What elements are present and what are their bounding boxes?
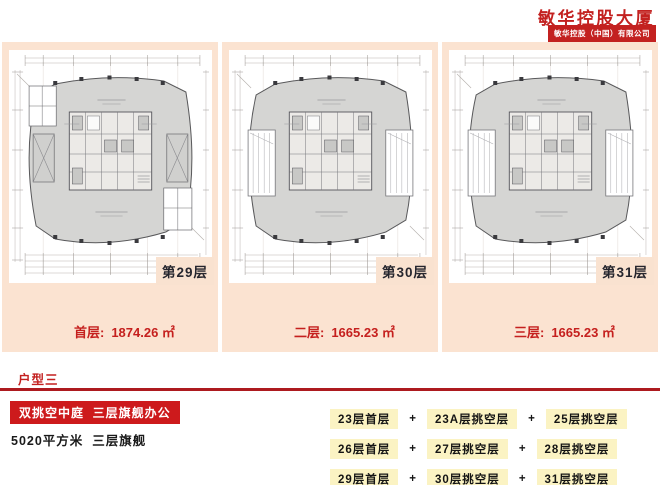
floor-31-tag: 第31层: [596, 257, 654, 285]
area-label: 首层:: [74, 325, 104, 340]
floor-29-area: 首层:1874.26 ㎡: [2, 307, 218, 356]
floor-cell: 25层挑空层: [546, 409, 627, 429]
plus-sign: +: [409, 443, 416, 455]
floor-30-area: 二层:1665.23 ㎡: [222, 307, 438, 356]
table-row: 23层首层 + 23A层挑空层 + 25层挑空层: [330, 409, 627, 429]
area-value: 1665.23 ㎡: [331, 325, 395, 340]
slide-page: 敏华控股大厦 敏华控股（中国）有限公司 第29层 首层:1874.26 ㎡ 第3…: [0, 0, 660, 485]
plus-sign: +: [519, 443, 526, 455]
plus-sign: +: [409, 473, 416, 485]
floor-cell: 31层挑空层: [537, 469, 618, 485]
floor-31-area: 三层:1665.23 ㎡: [442, 307, 658, 356]
unit-subtitle: 5020平方米 三层旗舰: [11, 430, 146, 449]
floor-cell: 27层挑空层: [427, 439, 508, 459]
area-label: 三层:: [514, 325, 544, 340]
panel-floor-30: 第30层 二层:1665.23 ㎡: [222, 42, 438, 352]
floor-cell: 29层首层: [330, 469, 398, 485]
panel-floor-29: 第29层 首层:1874.26 ㎡: [2, 42, 218, 352]
floor-30-tag: 第30层: [376, 257, 434, 285]
unit-type-title: 户型三: [18, 369, 59, 388]
area-value: 1665.23 ㎡: [551, 325, 615, 340]
floor-plan-31-drawing: [449, 50, 652, 283]
company-subtitle-bar: 敏华控股（中国）有限公司: [548, 25, 656, 42]
table-row: 29层首层 + 30层挑空层 + 31层挑空层: [330, 469, 627, 485]
floor-29-tag: 第29层: [156, 257, 214, 285]
table-row: 26层首层 + 27层挑空层 + 28层挑空层: [330, 439, 627, 459]
panel-floor-31: 第31层 三层:1665.23 ㎡: [442, 42, 658, 352]
area-label: 二层:: [294, 325, 324, 340]
floor-cell: 26层首层: [330, 439, 398, 459]
area-value: 1874.26 ㎡: [111, 325, 175, 340]
section-divider-rule: [0, 388, 660, 391]
floor-cell: 23A层挑空层: [427, 409, 517, 429]
floor-plan-29-drawing: [9, 50, 212, 283]
floor-plan-30-drawing: [229, 50, 432, 283]
floor-plan-panels: 第29层 首层:1874.26 ㎡ 第30层 二层:1665.23 ㎡ 第31层…: [2, 42, 658, 352]
floor-cell: 28层挑空层: [537, 439, 618, 459]
floor-combination-table: 23层首层 + 23A层挑空层 + 25层挑空层 26层首层 + 27层挑空层 …: [330, 409, 627, 485]
unit-highlight-banner: 双挑空中庭 三层旗舰办公: [10, 401, 180, 424]
floor-cell: 23层首层: [330, 409, 398, 429]
floor-cell: 30层挑空层: [427, 469, 508, 485]
plus-sign: +: [528, 413, 535, 425]
plus-sign: +: [409, 413, 416, 425]
plus-sign: +: [519, 473, 526, 485]
